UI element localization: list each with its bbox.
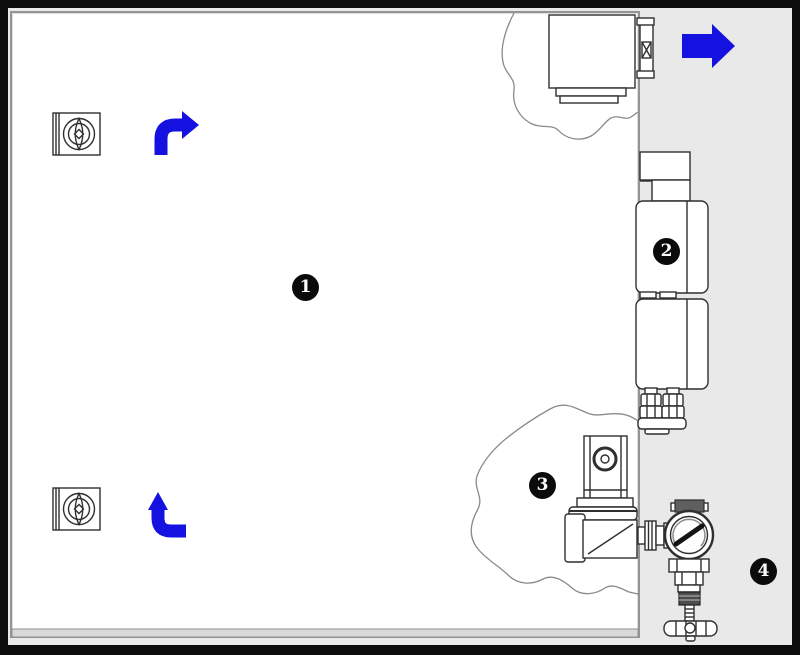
drain-glands <box>638 388 686 434</box>
exhaust-unit <box>549 15 654 103</box>
solenoid-valve-unit <box>565 436 637 562</box>
chamber-sill <box>12 629 638 637</box>
curved-arrow-right-icon <box>161 111 199 155</box>
diagram-frame: 1 2 3 4 <box>0 0 800 655</box>
callout-3: 3 <box>529 472 556 499</box>
nozzle-swirl-icon-top <box>53 113 100 155</box>
diagram-art <box>0 0 800 655</box>
filter-block-unit <box>636 152 708 434</box>
callout-4: 4 <box>750 558 777 585</box>
arrow-right-icon <box>682 24 735 68</box>
curved-arrow-up-icon <box>148 492 186 531</box>
nozzle-swirl-icon-bottom <box>53 488 100 530</box>
pressure-regulator-unit <box>664 500 717 641</box>
hand-knob <box>664 621 717 641</box>
callout-2: 2 <box>653 238 680 265</box>
callout-1: 1 <box>292 274 319 301</box>
exhaust-wall-fitting <box>637 18 654 78</box>
